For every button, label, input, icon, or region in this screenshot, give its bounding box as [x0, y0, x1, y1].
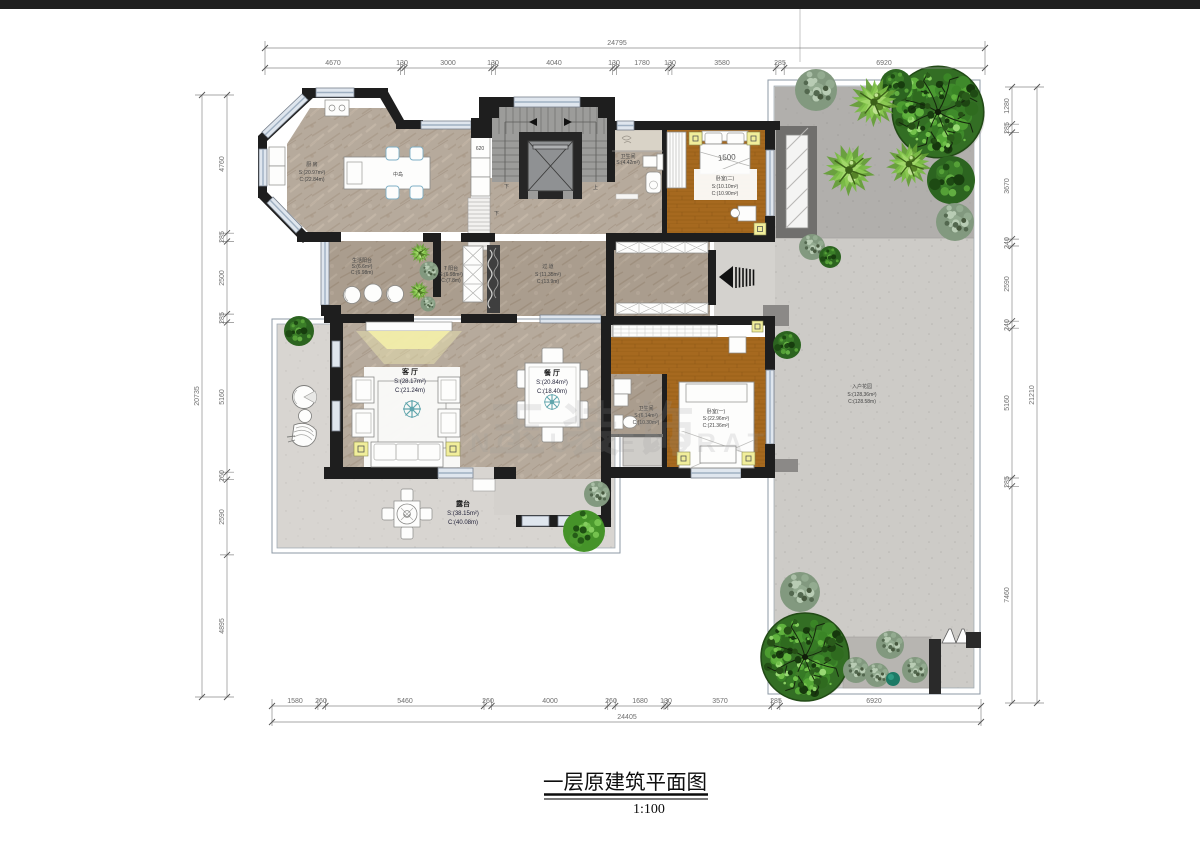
svg-text:3570: 3570: [712, 698, 728, 705]
svg-text:1680: 1680: [632, 698, 648, 705]
svg-text:260: 260: [605, 698, 617, 705]
svg-text:S:(28.17m²): S:(28.17m²): [394, 379, 426, 385]
svg-text:厨 房: 厨 房: [306, 161, 317, 168]
svg-text:24795: 24795: [607, 40, 627, 47]
svg-text:C:(7.8m): C:(7.8m): [441, 278, 461, 284]
svg-text:NGYU DECORAT: NGYU DECORAT: [470, 428, 771, 458]
svg-text:130: 130: [396, 60, 408, 67]
svg-text:中岛: 中岛: [393, 171, 403, 178]
svg-text:24405: 24405: [617, 714, 637, 721]
svg-text:卫生间: 卫生间: [620, 153, 635, 160]
svg-text:过 道: 过 道: [542, 263, 553, 270]
svg-text:C:(6.98m): C:(6.98m): [351, 270, 374, 276]
svg-text:130: 130: [664, 60, 676, 67]
svg-text:S:(22.96m²): S:(22.96m²): [703, 416, 730, 422]
svg-text:露台: 露台: [456, 499, 470, 508]
svg-text:T 阳台: T 阳台: [444, 265, 458, 272]
svg-text:260: 260: [315, 698, 327, 705]
svg-text:C:(22.84m): C:(22.84m): [299, 177, 324, 183]
svg-text:240: 240: [1004, 237, 1011, 249]
svg-text:130: 130: [608, 60, 620, 67]
svg-text:6920: 6920: [876, 60, 892, 67]
svg-text:下: 下: [494, 211, 499, 217]
svg-text:285: 285: [1004, 476, 1011, 488]
svg-text:130: 130: [487, 60, 499, 67]
svg-text:6920: 6920: [866, 698, 882, 705]
svg-text:5160: 5160: [1004, 395, 1011, 411]
svg-text:5460: 5460: [397, 698, 413, 705]
svg-text:1280: 1280: [1004, 98, 1011, 114]
svg-text:客 厅: 客 厅: [401, 367, 418, 376]
svg-text:4895: 4895: [219, 618, 226, 634]
svg-text:285: 285: [1004, 122, 1011, 134]
svg-text:1580: 1580: [287, 698, 303, 705]
svg-text:C:(13.9m): C:(13.9m): [537, 279, 560, 285]
svg-text:285: 285: [219, 231, 226, 243]
svg-text:下: 下: [504, 184, 509, 190]
svg-text:S:(38.15m²): S:(38.15m²): [447, 511, 479, 517]
svg-text:2500: 2500: [219, 270, 226, 286]
svg-text:285: 285: [219, 312, 226, 324]
svg-text:285: 285: [774, 60, 786, 67]
svg-text:上: 上: [593, 184, 598, 191]
svg-text:C:(21.24m): C:(21.24m): [395, 388, 425, 394]
svg-text:260: 260: [219, 470, 226, 482]
svg-text:2590: 2590: [219, 509, 226, 525]
svg-text:C:(40.08m): C:(40.08m): [448, 520, 478, 526]
svg-text:5160: 5160: [219, 389, 226, 405]
svg-text:4040: 4040: [546, 60, 562, 67]
svg-text:1500: 1500: [718, 152, 737, 162]
svg-text:21210: 21210: [1029, 385, 1036, 405]
svg-text:4000: 4000: [542, 698, 558, 705]
svg-text:卧室(一): 卧室(一): [707, 408, 726, 415]
svg-text:1780: 1780: [634, 60, 650, 67]
svg-text:1:100: 1:100: [633, 802, 665, 817]
svg-text:130: 130: [660, 698, 672, 705]
svg-text:20735: 20735: [194, 386, 201, 406]
svg-text:S:(20.84m²): S:(20.84m²): [536, 380, 568, 386]
svg-text:S:(10.10m²): S:(10.10m²): [712, 184, 739, 190]
svg-text:2590: 2590: [1004, 276, 1011, 292]
svg-text:入户花园: 入户花园: [852, 383, 872, 390]
svg-text:S:(4.42m²): S:(4.42m²): [616, 160, 640, 166]
svg-text:S:(20.97m²): S:(20.97m²): [299, 170, 326, 176]
svg-text:3580: 3580: [714, 60, 730, 67]
svg-text:260: 260: [482, 698, 494, 705]
svg-text:C:(10.90m²): C:(10.90m²): [712, 191, 739, 197]
svg-text:240: 240: [1004, 319, 1011, 331]
svg-text:285: 285: [770, 698, 782, 705]
svg-text:S:(128.36m²): S:(128.36m²): [847, 392, 877, 398]
svg-text:3000: 3000: [440, 60, 456, 67]
svg-text:卧室(二): 卧室(二): [716, 175, 735, 182]
svg-text:620: 620: [476, 146, 485, 152]
svg-text:生活阳台: 生活阳台: [352, 257, 372, 264]
svg-text:一层原建筑平面图: 一层原建筑平面图: [543, 771, 707, 794]
svg-text:7460: 7460: [1004, 587, 1011, 603]
svg-text:S:(11.35m²): S:(11.35m²): [535, 272, 561, 278]
svg-text:4670: 4670: [325, 60, 341, 67]
svg-text:C:(128.58m): C:(128.58m): [848, 399, 876, 405]
svg-text:3670: 3670: [1004, 178, 1011, 194]
svg-text:4760: 4760: [219, 156, 226, 172]
svg-text:餐 厅: 餐 厅: [543, 368, 560, 377]
svg-text:C:(18.40m): C:(18.40m): [537, 389, 567, 395]
